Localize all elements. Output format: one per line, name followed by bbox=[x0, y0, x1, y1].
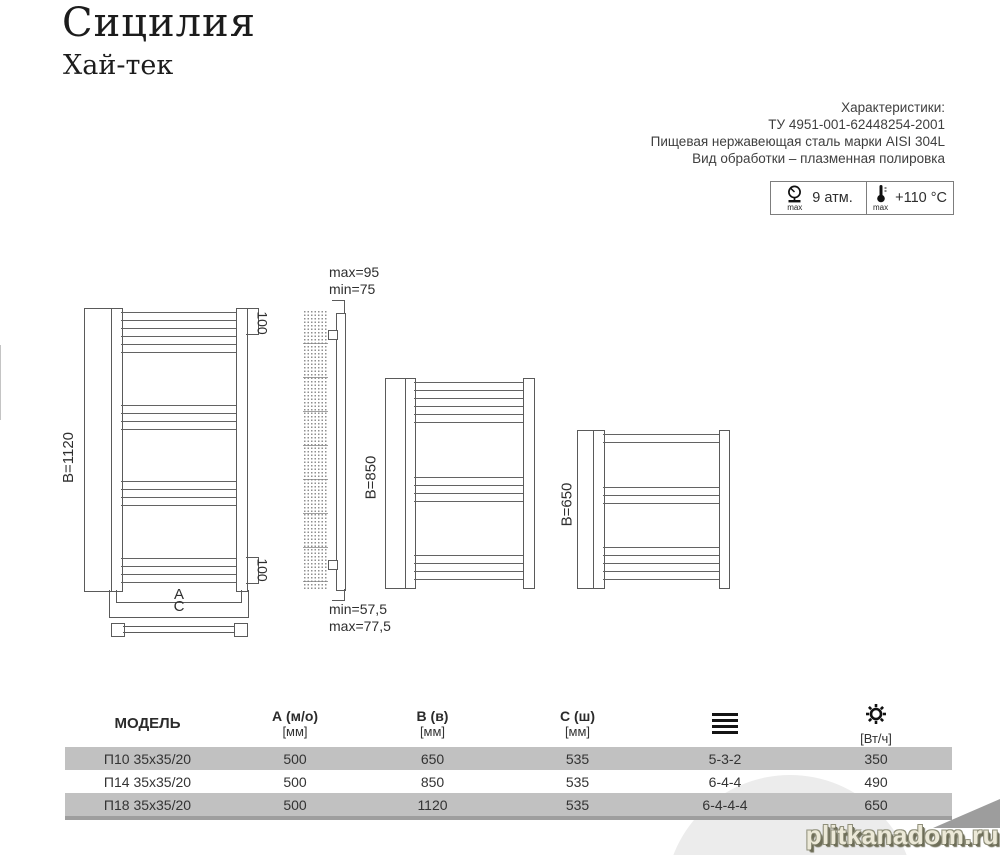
side-dim-top-label: max=95 min=75 bbox=[329, 264, 379, 297]
ratings-badge: max 9 атм. max +110 °C bbox=[770, 181, 954, 215]
radiator-rung bbox=[121, 413, 236, 414]
radiator-rung bbox=[414, 414, 523, 415]
radiator-rung bbox=[414, 398, 523, 399]
cell-c: 535 bbox=[505, 774, 650, 790]
radiator-rung bbox=[603, 571, 719, 572]
temperature-value: +110 °C bbox=[895, 190, 947, 206]
radiator-rung bbox=[414, 382, 523, 383]
radiator-rung bbox=[121, 405, 236, 406]
page-subtitle: Хай-тек bbox=[63, 50, 173, 81]
cell-b: 1120 bbox=[360, 797, 505, 813]
cell-a: 500 bbox=[230, 797, 360, 813]
header-cell-power: [Вт/ч] bbox=[800, 700, 952, 747]
side-dim-min-offset: min=57,5 bbox=[329, 601, 391, 618]
radiator-profile bbox=[336, 313, 346, 591]
radiator-rung bbox=[121, 505, 236, 506]
model-column-title: МОДЕЛЬ bbox=[115, 715, 181, 732]
side-dim-top-vline bbox=[344, 300, 345, 313]
radiator-rung bbox=[414, 477, 523, 478]
radiator-rung bbox=[121, 497, 236, 498]
cell-model: П18 35х35/20 bbox=[65, 797, 230, 813]
height-dimension-label: B=850 bbox=[362, 456, 379, 500]
radiator-rung bbox=[121, 312, 236, 313]
radiator-rung bbox=[414, 563, 523, 564]
cell-model: П10 35х35/20 bbox=[65, 751, 230, 767]
a-column-unit: [мм] bbox=[282, 724, 307, 739]
spec-table: МОДЕЛЬ А (м/о) [мм] В (в) [мм] С (ш) [мм… bbox=[65, 700, 952, 820]
height-dimension-label: B=1120 bbox=[60, 432, 77, 483]
spec-line: Пищевая нержавеющая сталь марки AISI 304… bbox=[651, 133, 945, 150]
radiator-rungs bbox=[603, 430, 719, 587]
page-title: Сицилия bbox=[62, 0, 256, 46]
dim-100-bottom-label: 100 bbox=[255, 558, 271, 581]
height-dimension-label: B=650 bbox=[558, 483, 575, 527]
radiator-rung bbox=[414, 493, 523, 494]
mount-bracket-bottom bbox=[328, 560, 338, 570]
table-header: МОДЕЛЬ А (м/о) [мм] В (в) [мм] С (ш) [мм… bbox=[65, 700, 952, 747]
radiator-rung bbox=[121, 558, 236, 559]
radiator-post-right bbox=[719, 430, 730, 589]
header-cell-rungs bbox=[650, 700, 800, 747]
cell-b: 850 bbox=[360, 774, 505, 790]
radiator-rung bbox=[121, 328, 236, 329]
spec-table-rows: П10 35х35/205006505355-3-2350П14 35х35/2… bbox=[65, 747, 952, 816]
spec-line: ТУ 4951-001-62448254-2001 bbox=[651, 116, 945, 133]
cell-a: 500 bbox=[230, 774, 360, 790]
cell-bars: 6-4-4-4 bbox=[650, 797, 800, 813]
c-column-unit: [мм] bbox=[565, 724, 590, 739]
cell-c: 535 bbox=[505, 797, 650, 813]
radiator-rung bbox=[414, 571, 523, 572]
cell-bars: 6-4-4 bbox=[650, 774, 800, 790]
wall-section bbox=[303, 310, 328, 591]
radiator-rung bbox=[121, 574, 236, 575]
power-column-unit: [Вт/ч] bbox=[860, 731, 892, 746]
side-dim-bottom-label: min=57,5 max=77,5 bbox=[329, 601, 391, 634]
radiator-rung bbox=[603, 547, 719, 548]
a-column-title: А (м/о) bbox=[272, 708, 318, 724]
header-cell-a: А (м/о) [мм] bbox=[230, 700, 360, 747]
radiator-rung bbox=[121, 429, 236, 430]
scan-edge-artifact bbox=[0, 345, 1, 420]
c-column-title: С (ш) bbox=[560, 708, 595, 724]
mount-bracket-top bbox=[328, 330, 338, 340]
pressure-value: 9 атм. bbox=[812, 190, 852, 206]
radiator-post-right bbox=[523, 378, 535, 589]
radiator-rung bbox=[121, 489, 236, 490]
dim-100-top-label: 100 bbox=[255, 311, 271, 334]
radiator-rung bbox=[603, 563, 719, 564]
cell-power: 650 bbox=[800, 797, 952, 813]
rungs-icon bbox=[712, 713, 738, 735]
cell-power: 490 bbox=[800, 774, 952, 790]
temperature-badge: max +110 °C bbox=[867, 182, 953, 214]
pressure-max-label: max bbox=[787, 204, 802, 211]
radiator-rung bbox=[603, 495, 719, 496]
spec-line: Вид обработки – плазменная полировка bbox=[651, 150, 945, 167]
table-row: П18 35х35/2050011205356-4-4-4650 bbox=[65, 793, 952, 816]
radiator-rung bbox=[414, 555, 523, 556]
b-column-unit: [мм] bbox=[420, 724, 445, 739]
radiator-rung bbox=[603, 487, 719, 488]
side-dim-max-depth: max=95 bbox=[329, 264, 379, 281]
table-row: П14 35х35/205008505356-4-4490 bbox=[65, 770, 952, 793]
radiator-rung bbox=[121, 344, 236, 345]
radiator-rung bbox=[603, 503, 719, 504]
specs-block: Характеристики: ТУ 4951-001-62448254-200… bbox=[651, 99, 945, 167]
radiator-rung bbox=[121, 582, 236, 583]
datasheet-page: Сицилия Хай-тек Характеристики: ТУ 4951-… bbox=[0, 0, 1000, 855]
radiator-rung bbox=[414, 485, 523, 486]
cell-c: 535 bbox=[505, 751, 650, 767]
radiator-rung bbox=[121, 566, 236, 567]
dim-c-bracket: C bbox=[109, 590, 249, 618]
radiator-rung bbox=[603, 442, 719, 443]
radiator-rung bbox=[121, 421, 236, 422]
pressure-gauge-icon: max bbox=[784, 185, 805, 211]
b-dimension-box bbox=[385, 378, 407, 589]
radiator-rung bbox=[414, 406, 523, 407]
side-dim-top-hline bbox=[332, 300, 345, 301]
header-cell-model: МОДЕЛЬ bbox=[65, 700, 230, 747]
thermometer-icon: max bbox=[873, 185, 888, 211]
radiator-rung bbox=[121, 352, 236, 353]
watermark-text: plitkanadom.ru bbox=[806, 820, 999, 851]
pressure-badge: max 9 атм. bbox=[771, 182, 867, 214]
specs-heading: Характеристики: bbox=[651, 99, 945, 116]
radiator-rung bbox=[121, 336, 236, 337]
cell-bars: 5-3-2 bbox=[650, 751, 800, 767]
header-cell-c: С (ш) [мм] bbox=[505, 700, 650, 747]
radiator-rung bbox=[121, 481, 236, 482]
radiator-rung bbox=[121, 320, 236, 321]
radiator-rung bbox=[414, 390, 523, 391]
cell-power: 350 bbox=[800, 751, 952, 767]
side-dim-max-offset: max=77,5 bbox=[329, 618, 391, 635]
cell-b: 650 bbox=[360, 751, 505, 767]
radiator-rung bbox=[414, 501, 523, 502]
radiator-rung bbox=[603, 434, 719, 435]
radiator-rung bbox=[414, 579, 523, 580]
radiator-rungs bbox=[121, 308, 236, 590]
top-view-end-right bbox=[234, 623, 248, 637]
power-icon bbox=[864, 702, 888, 731]
radiator-rung bbox=[414, 422, 523, 423]
radiator-rung bbox=[603, 579, 719, 580]
cell-a: 500 bbox=[230, 751, 360, 767]
table-row: П10 35х35/205006505355-3-2350 bbox=[65, 747, 952, 770]
radiator-rung bbox=[603, 555, 719, 556]
top-view-tube bbox=[123, 626, 234, 633]
radiator-rungs bbox=[414, 378, 523, 587]
b-dimension-box bbox=[84, 308, 113, 592]
header-cell-b: В (в) [мм] bbox=[360, 700, 505, 747]
dim-c-label: C bbox=[174, 598, 185, 615]
cell-model: П14 35х35/20 bbox=[65, 774, 230, 790]
b-column-title: В (в) bbox=[417, 708, 449, 724]
side-dim-min-depth: min=75 bbox=[329, 281, 379, 298]
radiator-post-right bbox=[236, 308, 248, 592]
temperature-max-label: max bbox=[873, 204, 888, 211]
